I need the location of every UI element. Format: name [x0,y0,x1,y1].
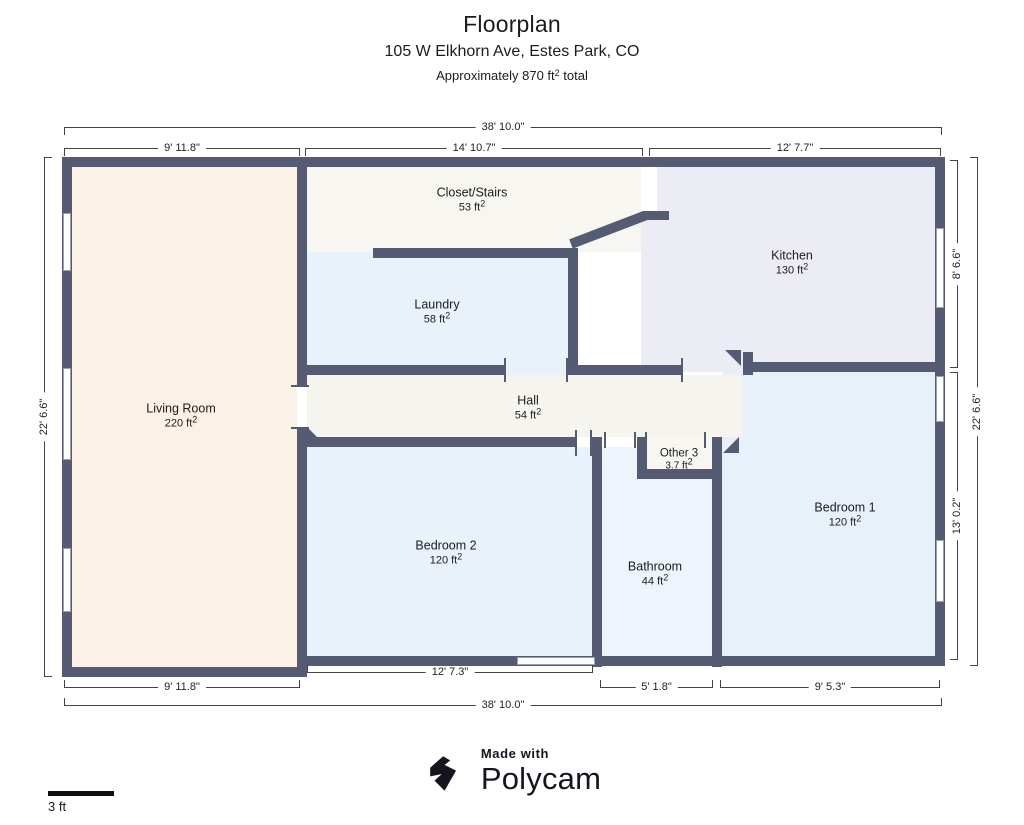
window-right-upper [936,228,944,308]
room-area-value: 53 ft [459,202,480,214]
room-area: 53 ft2 [437,201,508,215]
dim-label: 9' 11.8" [158,681,206,693]
room-area-value: 54 ft [515,410,536,422]
window-left-lower [63,548,71,612]
room-area-value: 130 ft [776,265,804,277]
door-tick [704,432,706,448]
room-area: 130 ft2 [771,264,813,278]
wall-kitchen-door-jamb [743,352,753,375]
dim-top-left: 9' 11.8" [64,148,300,156]
wall-outer-bottom-left [62,667,307,677]
dim-label: 12' 7.3" [426,666,475,678]
room-area: 3.7 ft2 [660,461,698,473]
room-name: Bedroom 2 [415,538,476,554]
room-area-value: 3.7 ft [665,461,687,472]
made-with-label: Made with [481,746,549,761]
brand-name: Polycam [481,761,601,797]
dim-label: 22' 6.6" [971,387,983,436]
total-area-text: Approximately 870 ft [436,68,555,83]
dim-left-total: 22' 6.6" [44,157,52,677]
scale-bar [48,791,114,796]
room-label-kitchen: Kitchen 130 ft2 [771,248,813,279]
wall-living-divider-lower [297,429,307,667]
dim-label: 38' 10.0" [476,121,531,133]
room-area: 120 ft2 [415,554,476,568]
sq-superscript: 2 [457,552,462,562]
wall-closet-laundry [373,248,578,258]
footer-branding: Made with Polycam [0,746,1024,797]
wall-stub-closet-kitchen [643,211,669,220]
dim-right-lower: 13' 0.2" [950,372,958,660]
door-swing-bedroom1 [723,437,739,453]
door-tick [566,358,568,382]
sq-superscript: 2 [480,199,485,209]
room-name: Laundry [414,297,459,313]
room-label-closet-stairs: Closet/Stairs 53 ft2 [437,185,508,216]
dim-label: 5' 1.8" [635,681,677,693]
room-name: Living Room [146,401,215,417]
room-name: Bedroom 1 [814,500,875,516]
total-area-suffix: total [560,68,588,83]
page-title: Floorplan [0,11,1024,38]
dim-top-mid: 14' 10.7" [305,148,643,156]
dim-label: 38' 10.0" [476,699,531,711]
wall-kitchen-bedroom1 [753,362,935,372]
door-tick [291,385,309,387]
wall-laundry-right [568,248,578,375]
door-swing-living [307,427,321,441]
floorplan-page: Floorplan 105 W Elkhorn Ave, Estes Park,… [0,0,1024,825]
window-right-middle [936,376,944,422]
window-bottom-bedroom2 [517,657,595,665]
doorway-closet-kitchen [641,167,657,211]
door-tick [645,432,647,448]
room-area: 220 ft2 [146,417,215,431]
total-area-note: Approximately 870 ft2 total [0,68,1024,83]
dim-label: 12' 7.7" [771,142,820,154]
room-label-hall: Hall 54 ft2 [515,393,541,424]
room-name: Bathroom [628,559,682,575]
scale-bar-label: 3 ft [48,799,66,814]
door-tick [504,358,506,382]
dim-label: 22' 6.6" [38,393,50,442]
dim-right-total: 22' 6.6" [970,157,978,666]
room-area-value: 58 ft [424,314,445,326]
wall-living-divider-upper [297,157,307,387]
dim-bottom-mid: 12' 7.3" [307,665,593,673]
room-area: 120 ft2 [814,516,875,530]
door-tick [604,432,606,448]
room-area-value: 220 ft [165,418,193,430]
room-name: Closet/Stairs [437,185,508,201]
sq-superscript: 2 [803,262,808,272]
door-tick [681,358,683,382]
room-area-value: 44 ft [642,576,663,588]
wall-bedroom2-bathroom [592,437,602,667]
wall-outer-top [62,157,945,167]
sq-superscript: 2 [663,573,668,583]
door-tick [590,430,592,456]
room-area: 44 ft2 [628,575,682,589]
door-tick [634,432,636,448]
door-tick [575,430,577,456]
dim-label: 14' 10.7" [447,142,502,154]
sq-superscript: 2 [856,514,861,524]
door-tick [291,427,309,429]
sq-superscript: 2 [536,407,541,417]
sq-superscript: 2 [688,457,693,467]
sq-superscript: 2 [445,311,450,321]
room-label-other3: Other 3 3.7 ft2 [660,448,698,473]
wall-hall-top-right [568,365,683,375]
room-label-bedroom1: Bedroom 1 120 ft2 [814,500,875,531]
dim-bottom-left: 9' 11.8" [64,680,300,688]
dim-label: 8' 6.6" [951,243,963,285]
room-label-living-room: Living Room 220 ft2 [146,401,215,432]
door-swing-kitchen [725,350,741,366]
polycam-logo-icon [423,749,469,795]
address-subtitle: 105 W Elkhorn Ave, Estes Park, CO [0,43,1024,61]
room-label-bedroom2: Bedroom 2 120 ft2 [415,538,476,569]
dim-top-total: 38' 10.0" [64,127,942,135]
room-label-laundry: Laundry 58 ft2 [414,297,459,328]
wall-hall-bottom [307,437,577,447]
room-area-value: 120 ft [829,517,857,529]
window-right-lower [936,540,944,602]
dim-right-upper: 8' 6.6" [950,160,958,368]
dim-label: 13' 0.2" [951,492,963,541]
dim-top-right: 12' 7.7" [649,148,941,156]
window-left-middle [63,368,71,460]
dim-label: 9' 5.3" [809,681,851,693]
dim-bottom-right: 9' 5.3" [720,680,940,688]
sq-superscript: 2 [192,415,197,425]
room-area: 58 ft2 [414,313,459,327]
room-area: 54 ft2 [515,409,541,423]
brand-text-block: Made with Polycam [481,746,601,797]
dim-bottom-bath: 5' 1.8" [600,680,713,688]
wall-hall-top-left [297,365,505,375]
window-left-upper [63,213,71,271]
room-label-bathroom: Bathroom 44 ft2 [628,559,682,590]
dim-bottom-total: 38' 10.0" [64,698,942,706]
dim-label: 9' 11.8" [158,142,206,154]
room-area-value: 120 ft [430,555,458,567]
